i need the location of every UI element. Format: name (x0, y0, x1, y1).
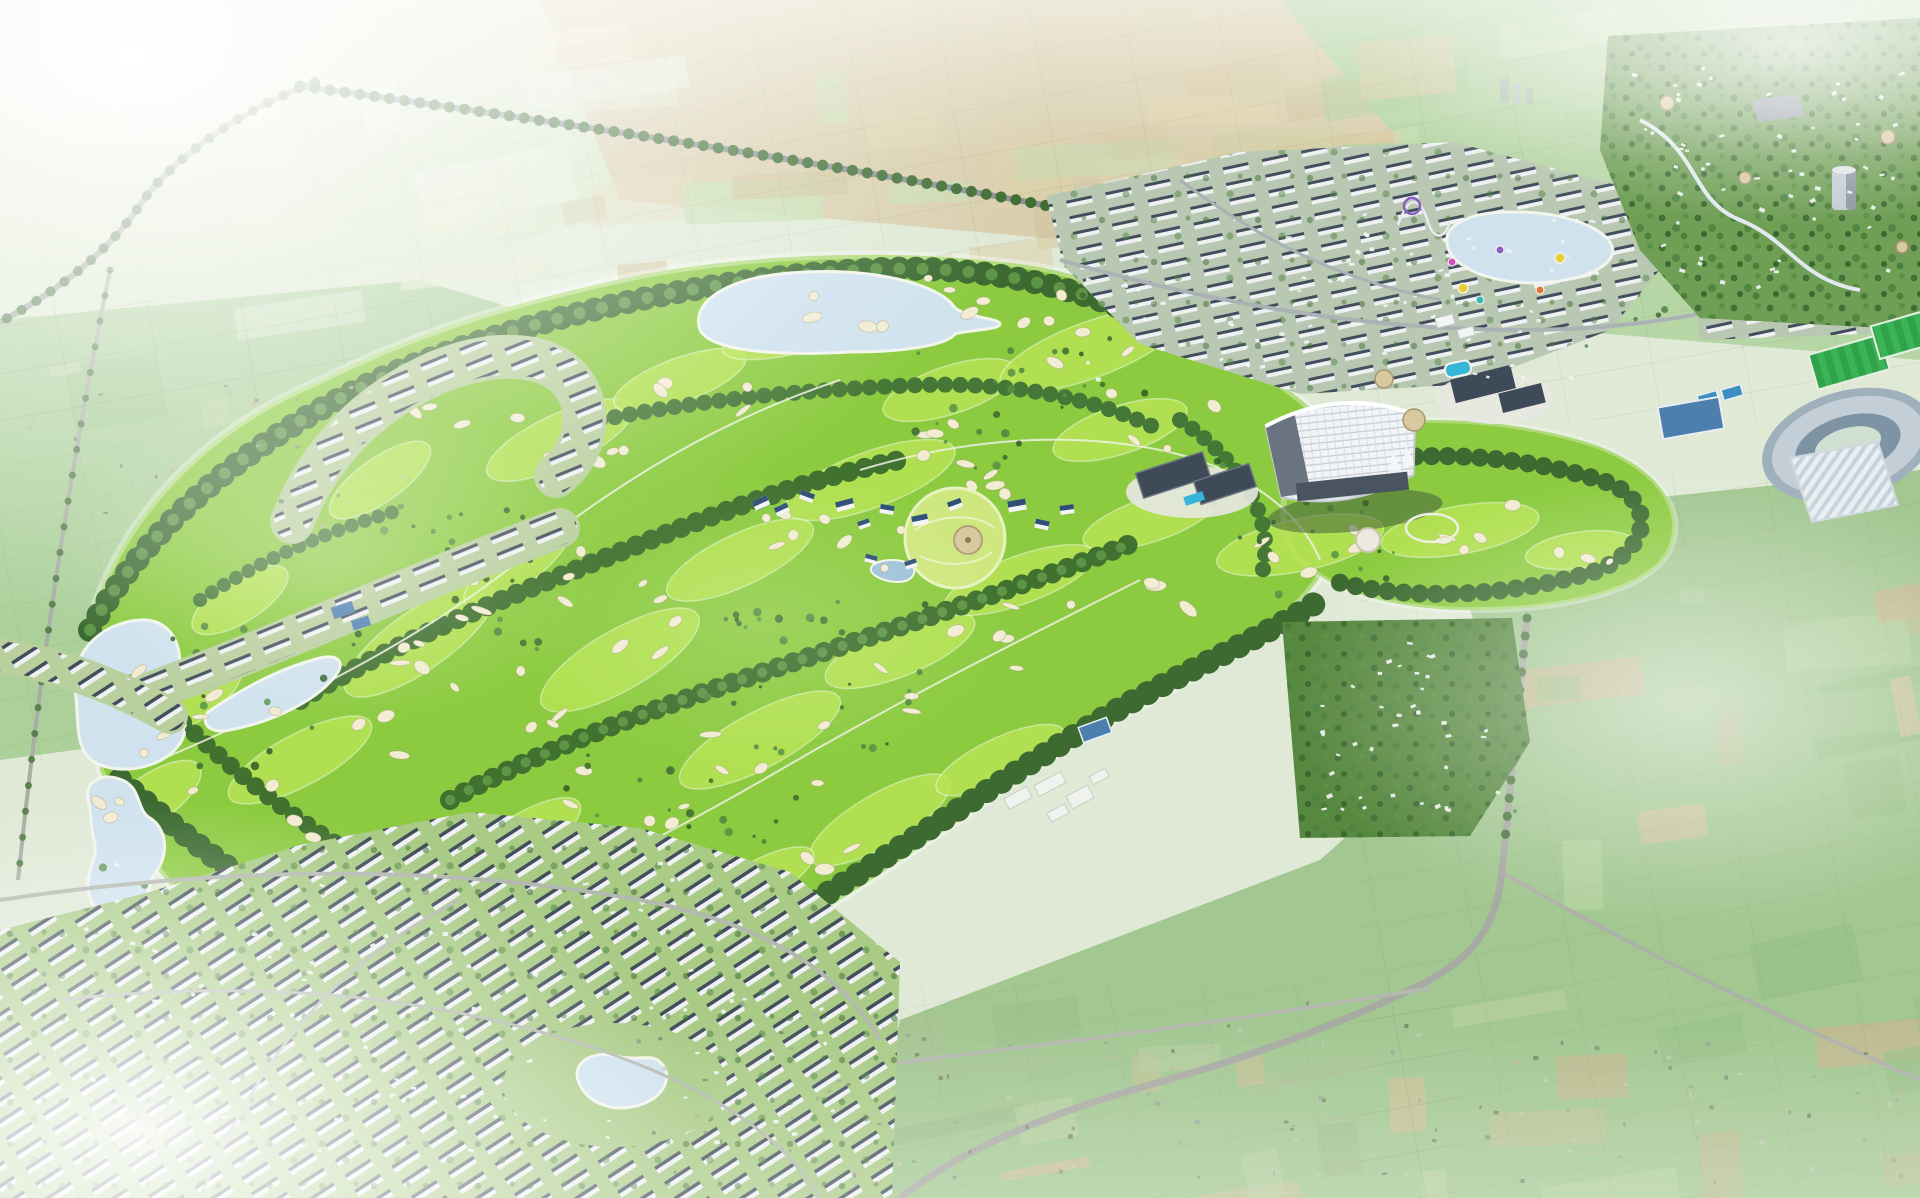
haze-layer (0, 0, 1920, 1198)
masterplan-render: Aerial oblique 3D architectural renderin… (0, 0, 1920, 1198)
render-canvas: Aerial oblique 3D architectural renderin… (0, 0, 1920, 1198)
haze-bottom-fade (0, 1018, 1920, 1198)
haze-center-sheen (500, 470, 1020, 770)
